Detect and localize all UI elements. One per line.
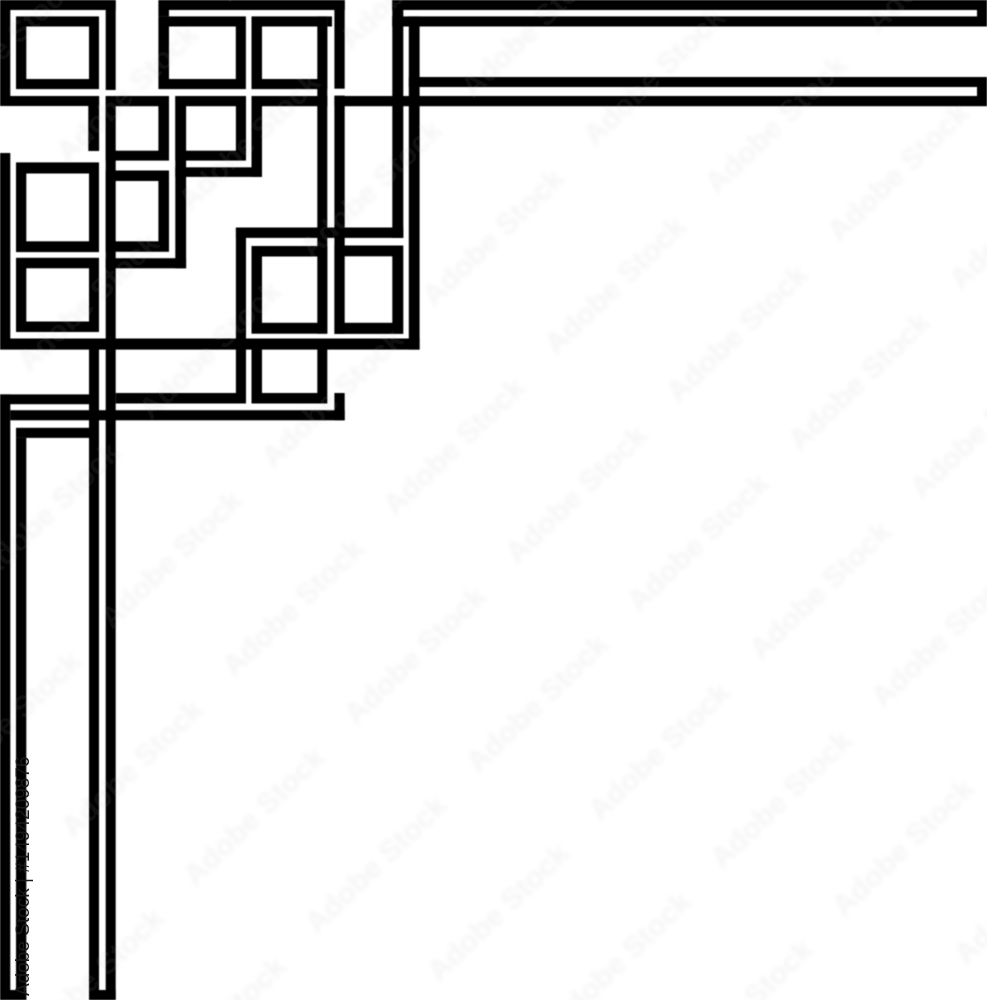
svg-text:Adobe Stock | #1494209876: Adobe Stock | #1494209876: [13, 757, 34, 996]
